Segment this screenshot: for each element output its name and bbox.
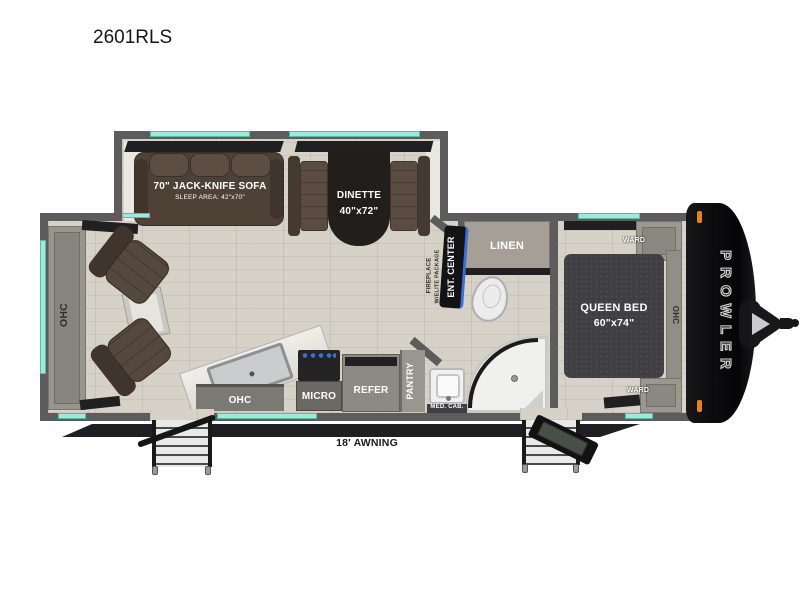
- bedroom-ohc-label: OHC: [669, 295, 679, 335]
- linen-cabinet: LINEN: [464, 221, 550, 269]
- cooktop-knobs: [302, 353, 336, 358]
- sofa-sublabel: SLEEP AREA: 42"x70": [139, 194, 281, 203]
- linen-shelf-edge: [464, 268, 550, 275]
- fireplace-label-line2: W/ELITE PACKAGE: [435, 237, 444, 317]
- bench-seat: [300, 161, 328, 231]
- sofa-overhead-cabinet: [124, 141, 284, 152]
- rear-ohc-label: OHC: [59, 285, 73, 345]
- med-cab-sink: [429, 368, 465, 404]
- sink-drain: [249, 371, 255, 377]
- kitchen-ohc-label: OHC: [196, 395, 284, 407]
- hitch-coupler-knob: [791, 319, 799, 327]
- queen-bed: QUEEN BED 60"x74": [564, 254, 664, 378]
- toilet-bowl: [480, 283, 503, 311]
- slide-window-right: [289, 131, 420, 137]
- queen-bed-label: QUEEN BED: [564, 302, 664, 316]
- microwave: MICRO: [296, 381, 342, 411]
- kitchen-bottom-window: [217, 413, 317, 419]
- marker-light: [697, 400, 702, 412]
- bedroom-top-window: [578, 213, 640, 219]
- ward-top-label: WARD: [608, 237, 660, 247]
- sink-basin: [436, 374, 460, 398]
- dinette-table: DINETTE 40"x72": [328, 150, 390, 246]
- dinette-bench-right: [388, 153, 430, 239]
- rear-wall-window: [40, 240, 46, 374]
- bath-bed-wall: [550, 221, 558, 421]
- pantry-label: PANTRY: [406, 353, 418, 409]
- sofa-cushion: [231, 153, 271, 177]
- bed-headboard-shelf: [564, 221, 636, 230]
- rear-bottom-window: [58, 413, 86, 419]
- marker-light: [697, 211, 702, 223]
- step-foot: [152, 466, 158, 475]
- ward-bottom-label: WARD: [612, 387, 664, 397]
- dinette-label: DINETTE: [328, 190, 390, 202]
- bench-back: [418, 156, 430, 236]
- page-title: 2601RLS: [93, 27, 253, 51]
- cooktop: [298, 350, 340, 381]
- dinette-size-label: 40"x72": [328, 206, 390, 218]
- linen-label: LINEN: [465, 240, 549, 253]
- sink-faucet: [446, 396, 451, 401]
- entry-landing-bedroom: [520, 408, 582, 420]
- refrigerator: REFER: [342, 354, 400, 412]
- refer-label: REFER: [343, 385, 399, 397]
- sofa-cushion: [149, 153, 189, 177]
- slide-corner-window: [122, 213, 150, 218]
- sofa-cushion: [190, 153, 230, 177]
- micro-label: MICRO: [297, 391, 341, 403]
- queen-bed-size: 60"x74": [564, 318, 664, 330]
- floorplan-canvas: 2601RLS 18' AWNING 70" JACK-KNIFE SOFA S…: [0, 0, 800, 600]
- bench-back: [288, 156, 300, 236]
- awning-label: 18' AWNING: [322, 438, 412, 451]
- step-foot: [573, 464, 579, 473]
- hitch-a-frame-cutout: [752, 313, 770, 335]
- kitchen-ohc-cabinet: OHC: [196, 384, 284, 411]
- bedroom-bottom-window: [625, 413, 653, 419]
- step-foot: [522, 464, 528, 473]
- shower-drain: [511, 375, 518, 382]
- slide-window-left: [150, 131, 250, 137]
- brand-text: PROWLER: [712, 213, 734, 413]
- refer-top-panel: [345, 357, 397, 366]
- dinette-bench-left: [288, 153, 330, 239]
- ent-center-label: ENT. CENTER: [447, 229, 459, 305]
- bench-seat: [390, 161, 418, 231]
- med-cab-label: MED. CAB.: [427, 404, 467, 413]
- step-foot: [205, 466, 211, 475]
- sofa-label: 70" JACK-KNIFE SOFA: [139, 181, 281, 193]
- jack-knife-sofa: 70" JACK-KNIFE SOFA SLEEP AREA: 42"x70": [134, 152, 284, 226]
